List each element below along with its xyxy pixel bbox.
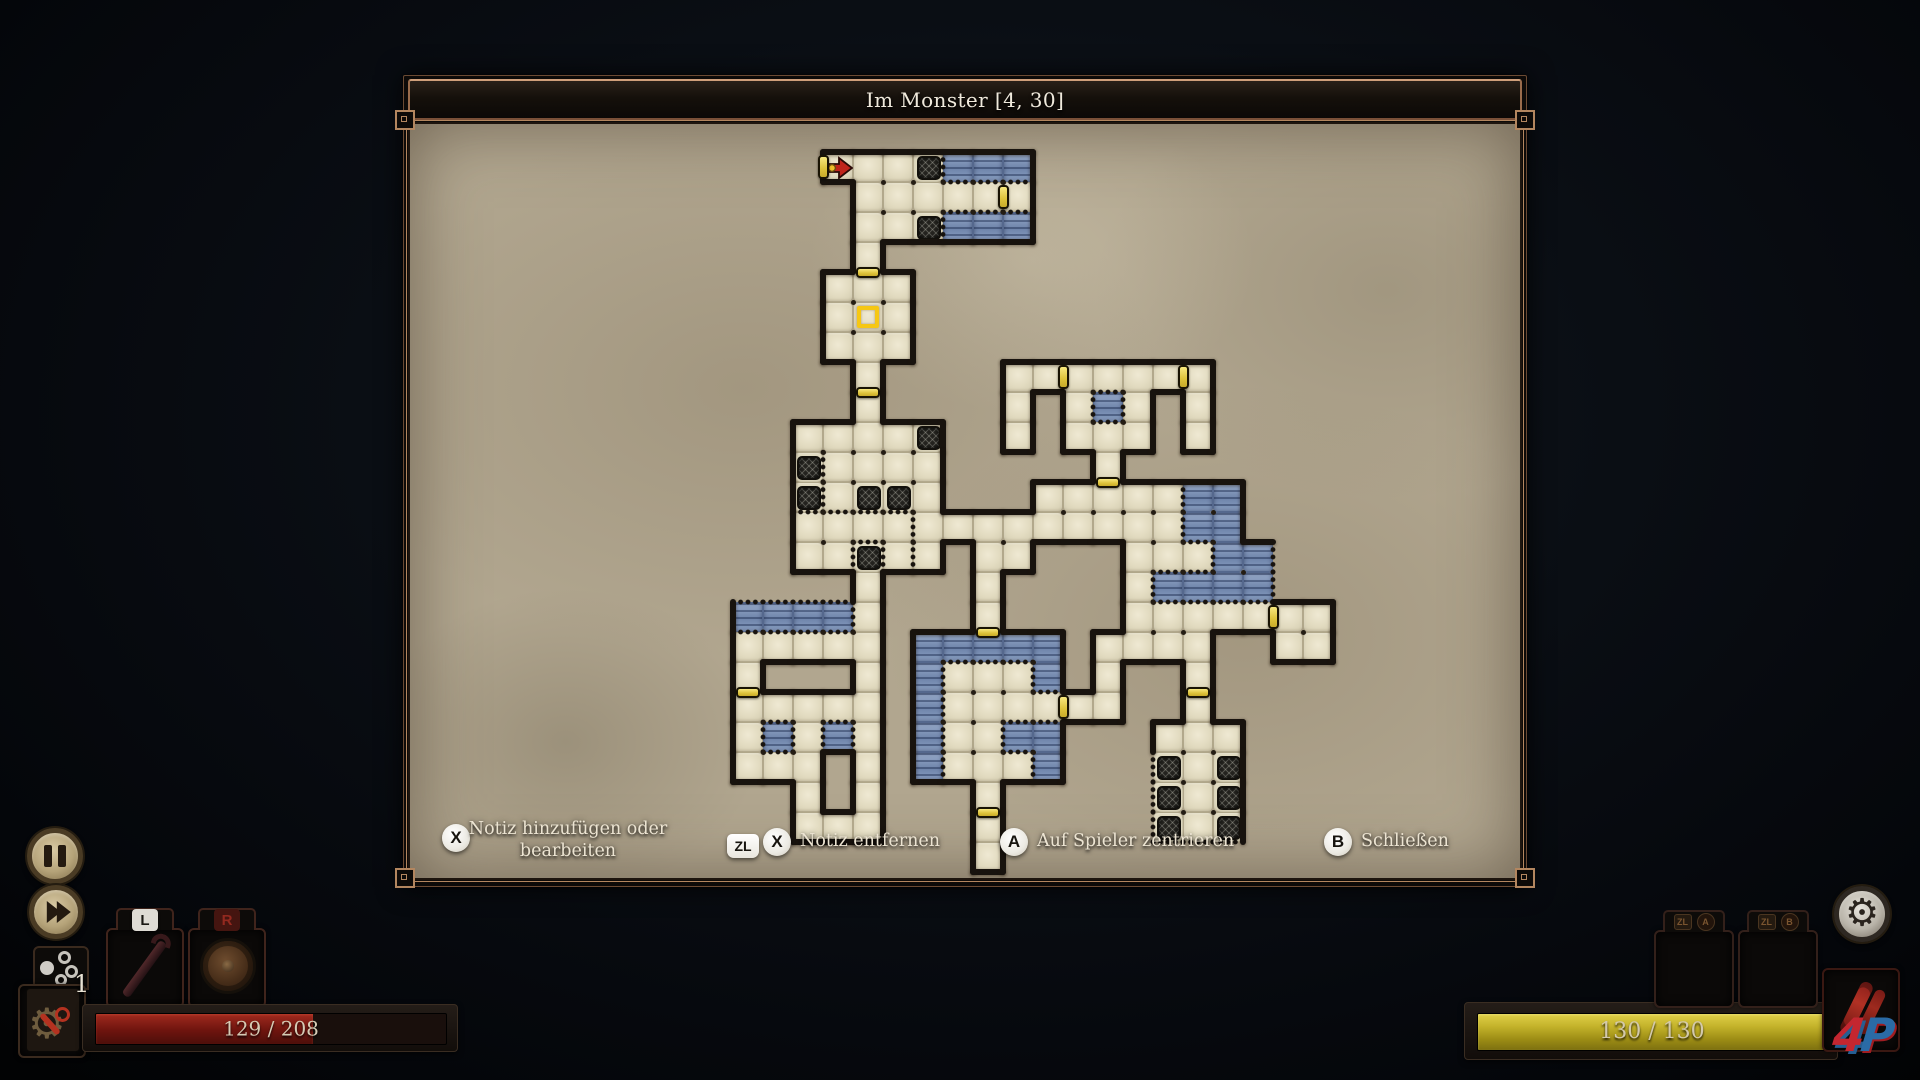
map-corner-dot [1091,510,1096,515]
map-tile-floor [793,632,823,662]
map-tile-water [1033,722,1063,752]
map-corner-dot [941,660,946,665]
map-wall [820,689,856,695]
map-corner-dot [1181,750,1186,755]
map-corner-dot [881,330,886,335]
health-bar-text: 129 / 208 [96,1017,446,1041]
map-tile-floor [853,602,883,632]
map-tile-floor [823,422,853,452]
map-wall [970,839,976,875]
map-wall [1180,419,1186,455]
map-corner-dot [1211,570,1216,575]
map-corner-dot [1061,510,1066,515]
map-tile-floor [1213,722,1243,752]
map-tile-floor [853,692,883,722]
hatched-block-icon [857,486,881,510]
map-tile-floor [763,752,793,782]
map-corner-dot [1001,660,1006,665]
map-corner-dot [1031,660,1036,665]
map-door [1268,605,1279,629]
map-corner-dot [1181,780,1186,785]
map-tile-floor [853,212,883,242]
pause-button[interactable] [27,828,83,884]
map-tile-floor [823,302,853,332]
map-wall [1330,629,1336,665]
map-wall [820,419,856,425]
map-corner-dot [881,210,886,215]
map-tile-hatched [1213,782,1243,812]
map-corner-dot [821,510,826,515]
map-corner-dot [1151,600,1156,605]
map-corner-dot [1121,390,1126,395]
map-corner-dot [1301,630,1306,635]
map-tile-floor [973,572,1003,602]
map-corner-dot [1001,720,1006,725]
wrench-head-icon [55,1007,70,1022]
map-tile-floor [1183,392,1213,422]
map-door [736,687,760,698]
left-hand-slot[interactable]: L [106,928,184,1008]
map-tile-floor [883,152,913,182]
hatched-block-icon [1157,786,1181,810]
map-wall [1030,419,1036,455]
map-door [1058,695,1069,719]
map-tile-hatched [1213,752,1243,782]
map-corner-dot [851,510,856,515]
dot-filled-icon [40,961,54,975]
map-corner-dot [881,540,886,545]
corner-ornament-top-left [395,110,415,130]
map-tile-floor [823,332,853,362]
map-corner-dot [911,480,916,485]
map-wall [1030,209,1036,245]
map-tile-floor [913,512,943,542]
map-tile-floor [943,512,973,542]
map-tile-floor [1123,632,1153,662]
map-tile-floor [1153,722,1183,752]
map-corner-dot [1241,600,1246,605]
map-corner-dot [791,720,796,725]
prompt-close-label: Schließen [1361,830,1449,852]
map-tile-floor [793,782,823,812]
map-door [818,155,829,179]
map-corner-dot [821,540,826,545]
game-screen: Im Monster [4, 30] X Notiz hinzufügen od… [0,0,1920,1080]
settings-button[interactable]: ⚙ [1834,886,1890,942]
map-tile-water [913,632,943,662]
map-tile-floor [853,782,883,812]
map-corner-dot [1211,510,1216,515]
map-corner-dot [971,180,976,185]
x-button-icon: X [763,828,791,856]
map-corner-dot [1241,570,1246,575]
map-tile-floor [943,692,973,722]
dot-ring-icon [58,951,71,964]
map-wall [820,809,856,815]
map-corner-dot [971,720,976,725]
map-tile-floor [913,482,943,512]
pause-icon [44,845,66,867]
hatched-block-icon [1217,756,1241,780]
map-tile-floor [973,842,1003,872]
health-bar: 129 / 208 [95,1013,447,1045]
corner-ornament-bottom-right [1515,868,1535,888]
map-corner-dot [1001,750,1006,755]
zl-key-icon: ZL [727,834,759,858]
map-corner-dot [1211,540,1216,545]
map-wall [1060,479,1096,485]
map-corner-dot [821,720,826,725]
map-tile-floor [733,752,763,782]
map-tile-floor [853,722,883,752]
map-corner-dot [791,750,796,755]
a-button-icon: A [1000,828,1028,856]
publisher-logo: 4P [1830,1008,1893,1062]
map-corner-dot [941,690,946,695]
prompt-remove-note-label: Notiz entfernen [800,830,940,852]
map-corner-dot [1181,570,1186,575]
map-tile-water [1003,212,1033,242]
map-tile-floor [1003,362,1033,392]
hatched-block-icon [1217,786,1241,810]
right-slot-b-tab: ZL B [1747,910,1809,932]
map-corner-dot [1001,180,1006,185]
shield-item-icon [200,938,256,994]
map-tile-floor [1003,512,1033,542]
map-corner-dot [911,180,916,185]
map-tile-floor [1003,422,1033,452]
map-parchment: X Notiz hinzufügen oder bearbeiten ZL X … [408,122,1522,880]
map-tile-water [973,212,1003,242]
map-tile-floor [1303,602,1333,632]
map-wall [730,749,736,785]
map-tile-floor [1123,362,1153,392]
map-corner-dot [851,300,856,305]
map-wall [1060,419,1066,455]
prompt-center-player-label: Auf Spieler zentrieren [1037,830,1234,852]
map-tile-water [1183,482,1213,512]
map-corner-dot [911,540,916,545]
map-tile-water [1033,752,1063,782]
map-wall [1030,539,1036,575]
map-tile-floor [1093,692,1123,722]
map-tile-floor [853,182,883,212]
map-tile-floor [853,752,883,782]
map-tile-floor [883,302,913,332]
fast-forward-button[interactable] [29,885,83,939]
hatched-block-icon [887,486,911,510]
map-tile-floor [943,662,973,692]
map-tile-floor [1153,602,1183,632]
map-corner-dot [1181,630,1186,635]
map-wall [1210,419,1216,455]
map-corner-dot [1151,570,1156,575]
map-tile-floor [1123,422,1153,452]
map-tile-floor [853,632,883,662]
map-wall [1000,419,1006,455]
right-slot-a-tab: ZL A [1663,910,1725,932]
map-tile-floor [853,572,883,602]
map-corner-dot [761,630,766,635]
map-corner-dot [911,210,916,215]
map-tile-floor [1123,512,1153,542]
map-door [856,387,880,398]
map-tile-floor [1063,512,1093,542]
map-tile-floor [823,452,853,482]
map-corner-dot [971,690,976,695]
map-corner-dot [791,630,796,635]
map-tile-floor [973,752,1003,782]
map-corner-dot [851,330,856,335]
map-door [856,267,880,278]
map-corner-dot [1001,540,1006,545]
map-corner-dot [1151,540,1156,545]
hatched-block-icon [917,216,941,240]
map-tile-floor [1033,482,1063,512]
map-tile-floor [1123,392,1153,422]
map-tile-floor [1033,512,1063,542]
map-wall [790,539,796,575]
corner-ornament-top-right [1515,110,1535,130]
map-tile-floor [1093,632,1123,662]
map-corner-dot [881,180,886,185]
map-tile-floor [883,332,913,362]
a-mini-button-icon: A [1697,913,1715,931]
map-tile-floor [1183,782,1213,812]
crowbar-item-icon [121,940,167,999]
map-wall [1000,509,1036,515]
hatched-block-icon [917,426,941,450]
map-wall [1060,749,1066,785]
map-tile-floor [973,662,1003,692]
map-corner-dot [941,750,946,755]
map-door [1096,477,1120,488]
map-corner-dot [851,630,856,635]
hatched-block-icon [797,486,821,510]
map-tile-floor [1063,422,1093,452]
map-wall [820,329,826,365]
map-corner-dot [761,720,766,725]
map-tile-floor [823,272,853,302]
map-corner-dot [1151,510,1156,515]
prompt-add-note-label: Notiz hinzufügen oder bearbeiten [468,818,668,862]
map-corner-dot [881,480,886,485]
map-wall [940,539,946,575]
map-wall [910,329,916,365]
map-corner-dot [1031,690,1036,695]
map-corner-dot [1181,600,1186,605]
b-button-icon: B [1324,828,1352,856]
map-wall [1240,809,1246,845]
map-corner-dot [1091,420,1096,425]
map-tile-floor [973,542,1003,572]
map-corner-dot [971,660,976,665]
map-wall [1150,419,1156,455]
map-tile-water [943,212,973,242]
map-tile-floor [733,632,763,662]
map-corner-dot [821,630,826,635]
map-tile-floor [1273,632,1303,662]
map-tile-floor [1213,602,1243,632]
map-corner-dot [1211,810,1216,815]
map-corner-dot [851,480,856,485]
map-tile-floor [793,542,823,572]
map-tile-hatched [1153,752,1183,782]
map-tile-floor [1123,482,1153,512]
map-tile-water [1213,482,1243,512]
right-slot-a[interactable]: ZL A [1654,930,1734,1008]
hatched-block-icon [917,156,941,180]
map-corner-dot [1181,510,1186,515]
right-slot-b[interactable]: ZL B [1738,930,1818,1008]
energy-bar: 130 / 130 [1477,1013,1827,1051]
map-tile-floor [793,692,823,722]
map-tile-water [1213,512,1243,542]
map-wall [910,749,916,785]
health-bar-frame: 129 / 208 [82,1004,458,1052]
zl-mini-key-icon: ZL [1758,914,1776,930]
map-corner-dot [1031,750,1036,755]
gadget-count: 1 [74,970,89,998]
left-hand-slot-tab: L [116,908,174,930]
map-corner-dot [1001,210,1006,215]
map-corner-dot [911,450,916,455]
map-tile-floor [1123,602,1153,632]
map-title-bar: Im Monster [4, 30] [408,79,1522,120]
map-corner-dot [971,210,976,215]
map-corner-dot [881,450,886,455]
map-tile-floor [883,422,913,452]
map-corner-dot [1211,600,1216,605]
map-tile-floor [1093,422,1123,452]
map-corner-dot [1181,810,1186,815]
map-tile-floor [853,452,883,482]
map-corner-dot [941,210,946,215]
map-door [1186,687,1210,698]
corner-ornament-bottom-left [395,868,415,888]
map-tile-floor [883,272,913,302]
zl-mini-key-icon: ZL [1674,914,1692,930]
map-tile-floor [1183,752,1213,782]
map-tile-floor [853,152,883,182]
shield-boss-icon [222,960,234,972]
map-tile-floor [973,692,1003,722]
map-tile-floor [793,512,823,542]
right-hand-slot[interactable]: R [188,928,266,1008]
hatched-block-icon [797,456,821,480]
map-tile-floor [853,662,883,692]
map-tile-floor [883,182,913,212]
map-tile-floor [823,512,853,542]
map-tile-floor [943,752,973,782]
map-tile-floor [823,632,853,662]
fast-forward-icon [47,901,67,923]
map-corner-dot [1121,510,1126,515]
map-tile-floor [913,182,943,212]
map-tile-floor [1063,482,1093,512]
energy-bar-text: 130 / 130 [1478,1019,1826,1044]
map-wall [1270,629,1276,665]
map-tile-floor [853,332,883,362]
map-corner-dot [851,540,856,545]
map-corner-dot [821,450,826,455]
right-hand-slot-tab: R [198,908,256,930]
map-corner-dot [941,180,946,185]
map-tile-water [1033,632,1063,662]
map-tile-floor [1183,722,1213,752]
map-tile-floor [1093,662,1123,692]
map-door [1058,365,1069,389]
map-window: Im Monster [4, 30] X Notiz hinzufügen od… [403,75,1527,887]
map-tile-floor [883,212,913,242]
map-corner-dot [1151,630,1156,635]
l-key-icon: L [132,909,158,931]
map-corner-dot [1211,780,1216,785]
map-corner-dot [1091,390,1096,395]
b-mini-button-icon: B [1781,913,1799,931]
map-tile-floor [793,422,823,452]
map-door [976,627,1000,638]
map-tile-floor [1123,542,1153,572]
map-corner-dot [1181,540,1186,545]
hatched-block-icon [1157,756,1181,780]
map-door [1178,365,1189,389]
map-tile-water [1213,542,1243,572]
settings-gear-icon: ⚙ [1845,893,1879,931]
gadget-device: ⚙ [26,988,80,1052]
map-tile-floor [1153,632,1183,662]
map-corner-dot [851,720,856,725]
map-tile-floor [853,422,883,452]
map-tile-floor [1183,602,1213,632]
map-tile-floor [1003,542,1033,572]
map-corner-dot [1001,690,1006,695]
player-position-marker [857,306,879,328]
logo-p: P [1858,1008,1893,1062]
map-tile-floor [1303,632,1333,662]
map-tile-floor [1093,512,1123,542]
map-tile-hatched [1153,782,1183,812]
map-door [998,185,1009,209]
map-tile-floor [1183,632,1213,662]
map-tile-floor [763,632,793,662]
r-key-icon: R [214,909,240,931]
map-wall [1120,689,1126,725]
map-corner-dot [911,510,916,515]
map-tile-hatched [913,422,943,452]
map-tile-floor [1003,392,1033,422]
map-tile-floor [793,752,823,782]
map-corner-dot [1211,750,1216,755]
map-door [976,807,1000,818]
x-button-icon: X [442,824,470,852]
map-corner-dot [971,750,976,755]
map-corner-dot [851,450,856,455]
map-tile-floor [913,452,943,482]
map-corner-dot [1121,420,1126,425]
map-tile-floor [973,512,1003,542]
map-corner-dot [941,720,946,725]
map-corner-dot [1031,720,1036,725]
map-tile-floor [1183,422,1213,452]
map-corner-dot [881,300,886,305]
map-corner-dot [881,510,886,515]
map-tile-floor [883,452,913,482]
map-corner-dot [821,480,826,485]
map-tile-floor [913,542,943,572]
energy-bar-frame: 130 / 130 [1464,1002,1838,1060]
map-title: Im Monster [4, 30] [866,88,1064,112]
